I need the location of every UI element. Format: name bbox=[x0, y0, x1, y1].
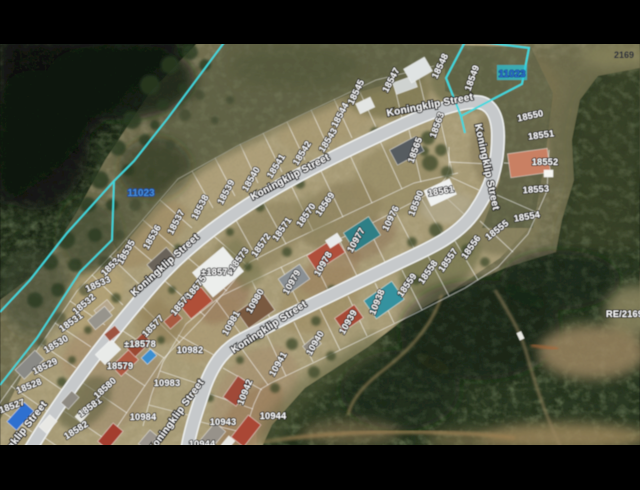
svg-text:±18578: ±18578 bbox=[124, 339, 156, 349]
svg-text:RE/2169: RE/2169 bbox=[606, 309, 640, 319]
svg-text:18579: 18579 bbox=[107, 361, 134, 371]
svg-text:10943: 10943 bbox=[210, 417, 237, 427]
svg-text:10984: 10984 bbox=[130, 412, 157, 422]
svg-text:18552: 18552 bbox=[532, 157, 559, 167]
svg-text:10982: 10982 bbox=[177, 345, 204, 355]
svg-text:10944: 10944 bbox=[260, 411, 287, 421]
svg-text:11023: 11023 bbox=[127, 188, 155, 199]
svg-text:11023: 11023 bbox=[498, 69, 526, 80]
svg-text:10983: 10983 bbox=[154, 378, 181, 388]
svg-text:2169: 2169 bbox=[614, 50, 634, 60]
svg-text:18553: 18553 bbox=[522, 183, 549, 195]
